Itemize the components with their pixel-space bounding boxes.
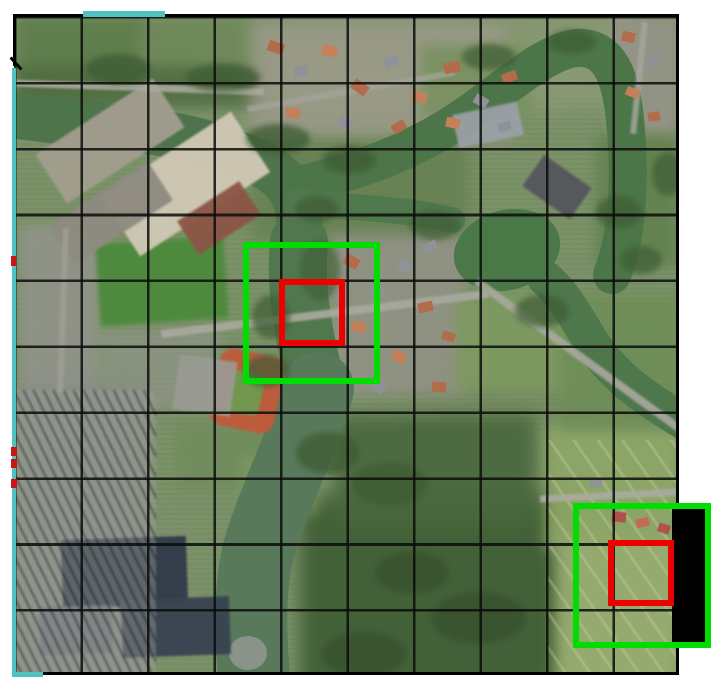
terrain-feature (652, 152, 679, 196)
terrain-feature (620, 246, 662, 274)
terrain-feature (352, 462, 428, 506)
terrain-feature (445, 117, 461, 130)
terrain-feature (57, 228, 69, 393)
terrain-feature (474, 278, 679, 434)
edge-tick (11, 459, 17, 468)
terrain-feature (337, 115, 355, 130)
target-box (279, 279, 345, 346)
terrain-feature (423, 240, 439, 254)
terrain-feature (321, 45, 338, 57)
terrain-feature (472, 93, 489, 109)
terrain-feature (441, 330, 456, 342)
terrain-feature (443, 61, 461, 75)
terrain-feature (596, 196, 642, 228)
terrain-feature (522, 155, 591, 219)
terrain-feature (589, 477, 602, 488)
edge-tick (11, 479, 17, 488)
terrain-feature (548, 30, 596, 54)
terrain-feature (411, 90, 428, 104)
terrain-feature (375, 552, 449, 594)
terrain-feature (410, 210, 460, 240)
terrain-feature (515, 295, 569, 327)
terrain-feature (390, 349, 407, 364)
terrain-feature (247, 70, 455, 112)
terrain-feature (14, 390, 156, 675)
terrain-feature (417, 301, 434, 314)
terrain-feature (246, 124, 310, 154)
terrain-feature (432, 381, 447, 392)
terrain-feature (621, 31, 636, 43)
terrain-feature (295, 196, 339, 222)
terrain-feature (293, 64, 309, 77)
terrain-feature (95, 236, 228, 327)
terrain-feature (647, 111, 660, 122)
terrain-feature (397, 260, 414, 275)
footprint-outline-segment (83, 11, 165, 17)
screenshot-canvas (0, 0, 716, 687)
terrain-feature (286, 107, 301, 118)
terrain-feature (501, 70, 519, 85)
terrain-feature (383, 54, 400, 69)
terrain-feature (645, 57, 659, 69)
target-box (608, 540, 674, 606)
terrain-feature (296, 432, 360, 474)
terrain-feature (462, 44, 516, 70)
terrain-feature (172, 354, 237, 417)
edge-tick (11, 447, 17, 456)
footprint-outline-segment (12, 672, 43, 677)
image-boundary-segment (13, 672, 679, 675)
terrain-feature (390, 119, 407, 135)
edge-tick (11, 256, 16, 266)
terrain-feature (452, 102, 524, 149)
terrain-feature (267, 40, 286, 56)
footprint-outline-segment (12, 68, 16, 677)
terrain-feature (86, 54, 150, 84)
terrain-feature (322, 632, 406, 675)
terrain-feature (322, 146, 376, 174)
terrain-feature (432, 592, 526, 644)
terrain-feature (350, 78, 369, 96)
terrain-feature (186, 64, 260, 92)
